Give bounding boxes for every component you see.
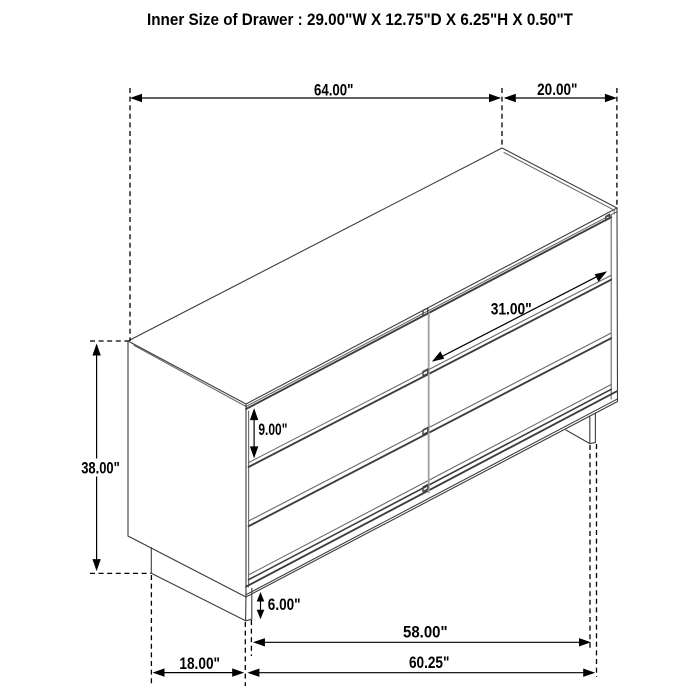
svg-text:31.00": 31.00" bbox=[491, 300, 532, 318]
svg-text:58.00": 58.00" bbox=[403, 623, 448, 641]
svg-text:Inner Size of Drawer : 29.00"W: Inner Size of Drawer : 29.00"W X 12.75"D… bbox=[147, 11, 573, 29]
svg-text:64.00": 64.00" bbox=[314, 81, 353, 99]
svg-text:60.25": 60.25" bbox=[409, 654, 450, 672]
svg-text:20.00": 20.00" bbox=[537, 81, 577, 99]
svg-text:18.00": 18.00" bbox=[179, 655, 220, 673]
svg-text:6.00": 6.00" bbox=[268, 596, 301, 614]
svg-text:9.00": 9.00" bbox=[258, 421, 287, 439]
svg-text:38.00": 38.00" bbox=[81, 460, 120, 478]
